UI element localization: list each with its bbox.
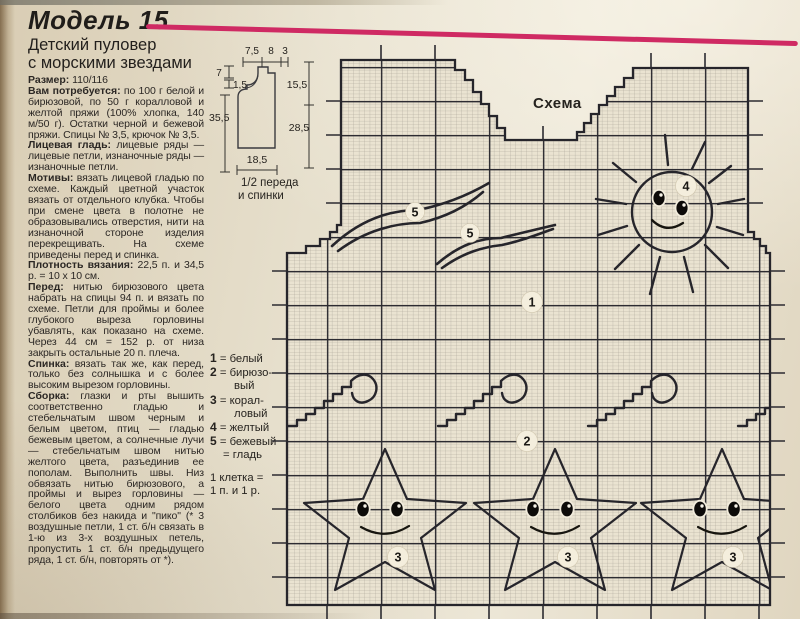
legend-row-beige: 5 = бежевый: [210, 435, 276, 449]
para-gauge: Плотность вязания: 22,5 п. и 34,5 р. = 1…: [28, 260, 204, 282]
para-front: Перед: нитью бирюзового цвета набрать на…: [28, 282, 204, 358]
para-materials: Вам потребуется: по 100 г белой и бирюзо…: [28, 86, 204, 141]
svg-text:3: 3: [565, 551, 572, 565]
instructions-column: Размер: 110/116 Вам потребуется: по 100 …: [28, 75, 204, 566]
para-back: Спинка: вязать так же, как перед, только…: [28, 359, 204, 392]
svg-text:5: 5: [412, 206, 419, 220]
sun-eye-left: [653, 191, 664, 205]
chart-bold-grid: [287, 60, 770, 605]
color-key-legend: 1 = белый 2 = бирюзо-вый 3 = корал-ловый…: [210, 352, 276, 498]
subtitle-line-1: Детский пуловер: [28, 37, 192, 55]
chart-badge-starfish-2: 3: [558, 547, 579, 568]
svg-text:5: 5: [467, 227, 474, 241]
legend-row-satin-stitch: = гладь: [210, 449, 276, 462]
dim-width: 18,5: [247, 154, 268, 166]
svg-text:2: 2: [524, 435, 531, 449]
legend-cell-note: 1 клетка = 1 п. и 1 р.: [210, 472, 276, 498]
legend-row-coral: 3 = корал-ловый: [210, 394, 276, 421]
page-gutter-shadow: [0, 0, 15, 619]
dim-back-neck: 1,5: [233, 80, 247, 91]
sun-eye-right: [676, 201, 687, 215]
para-finishing: Сборка: глазки и рты вышить соответствен…: [28, 391, 204, 566]
magazine-page: Модель 15 Детский пуловер с морскими зве…: [0, 0, 800, 619]
page-title: Модель 15: [28, 5, 169, 36]
para-motifs: Мотивы: вязать лицевой гладью по схеме. …: [28, 173, 204, 260]
dim-neck-depth: 7: [216, 68, 222, 79]
chart-badge-sun: 4: [676, 176, 697, 197]
para-stockinette: Лицевая гладь: лицевые ряды — лицевые пе…: [28, 140, 204, 173]
chart-badge-waves: 2: [517, 431, 538, 452]
chart-label: Схема: [533, 95, 582, 112]
chart-badge-bird-1: 5: [406, 203, 425, 222]
knitting-chart: Схема 1 2 3 3 3 4 5 5: [270, 40, 800, 619]
article-subtitle: Детский пуловер с морскими звездами: [28, 37, 192, 72]
chart-badge-front: 1: [522, 292, 543, 313]
legend-row-turquoise: 2 = бирюзо-вый: [210, 366, 276, 393]
legend-row-yellow: 4 = желтый: [210, 421, 276, 435]
dim-length: 35,5: [209, 112, 230, 124]
svg-text:3: 3: [730, 551, 737, 565]
chart-badge-bird-2: 5: [461, 224, 480, 243]
chart-badge-starfish-3: 3: [723, 547, 744, 568]
svg-text:4: 4: [683, 180, 690, 194]
svg-text:3: 3: [395, 551, 402, 565]
svg-text:1: 1: [529, 296, 536, 310]
legend-row-white: 1 = белый: [210, 352, 276, 366]
chart-badge-starfish-1: 3: [388, 547, 409, 568]
subtitle-line-2: с морскими звездами: [28, 55, 192, 73]
dim-top-1: 7,5: [245, 46, 259, 57]
